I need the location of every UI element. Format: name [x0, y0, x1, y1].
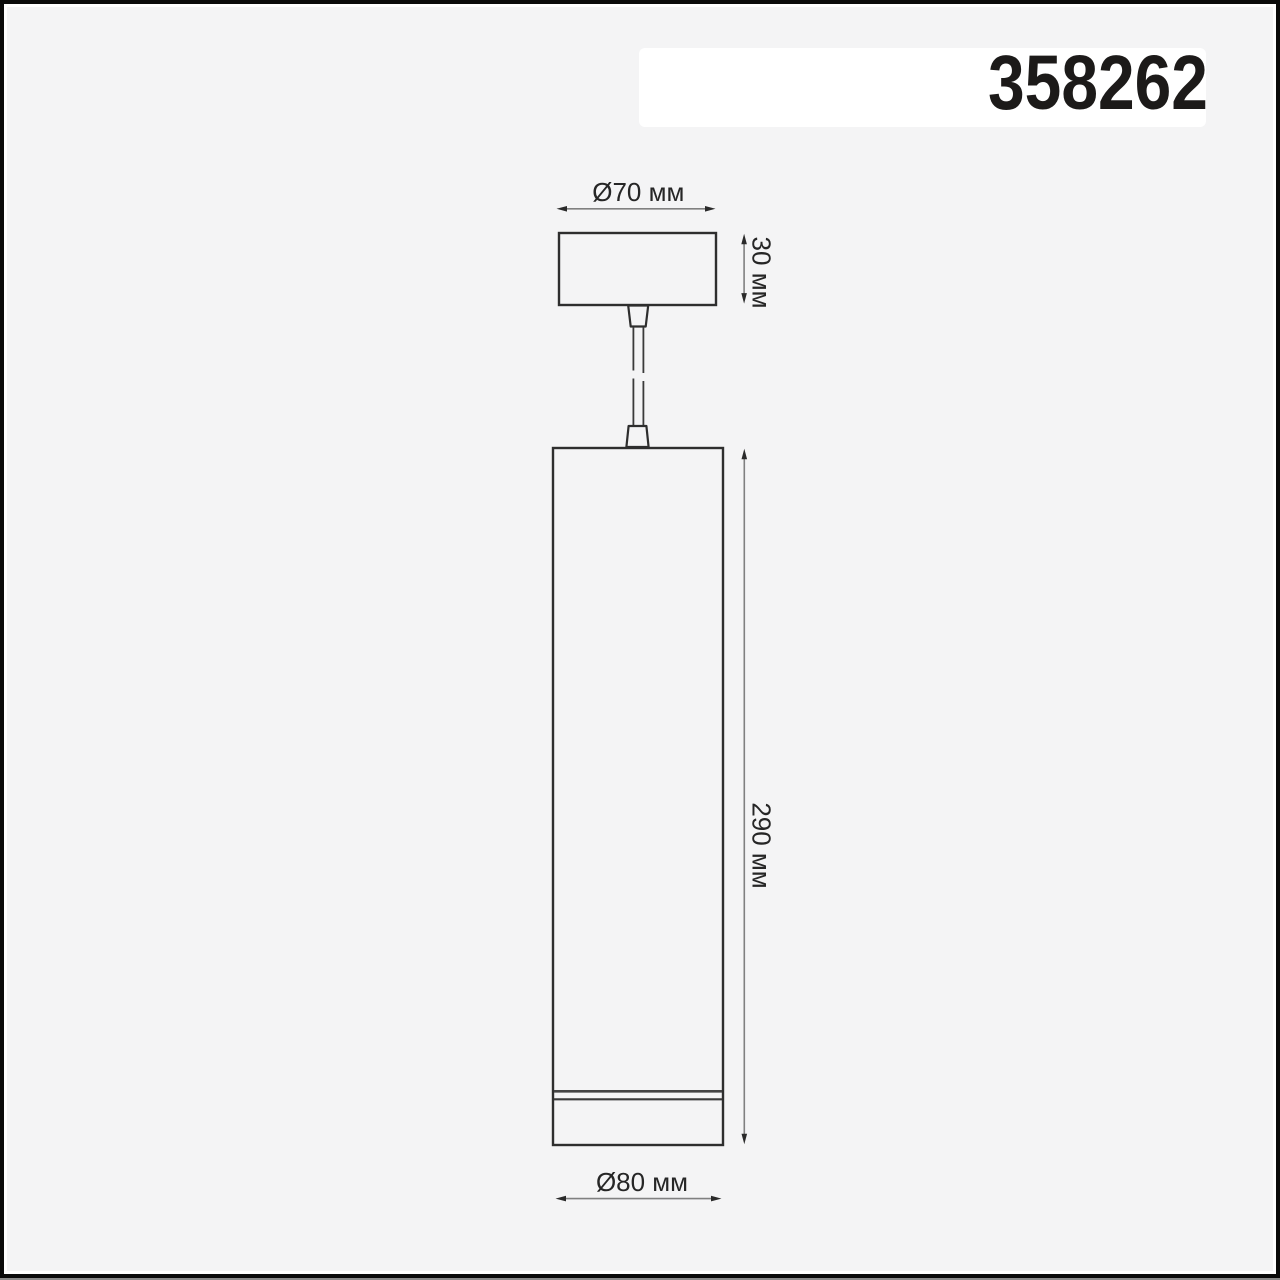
svg-text:290 мм: 290 мм — [747, 802, 777, 888]
svg-text:Ø70 мм: Ø70 мм — [592, 177, 684, 207]
svg-text:Ø80 мм: Ø80 мм — [596, 1167, 688, 1197]
svg-text:30 мм: 30 мм — [747, 237, 777, 309]
